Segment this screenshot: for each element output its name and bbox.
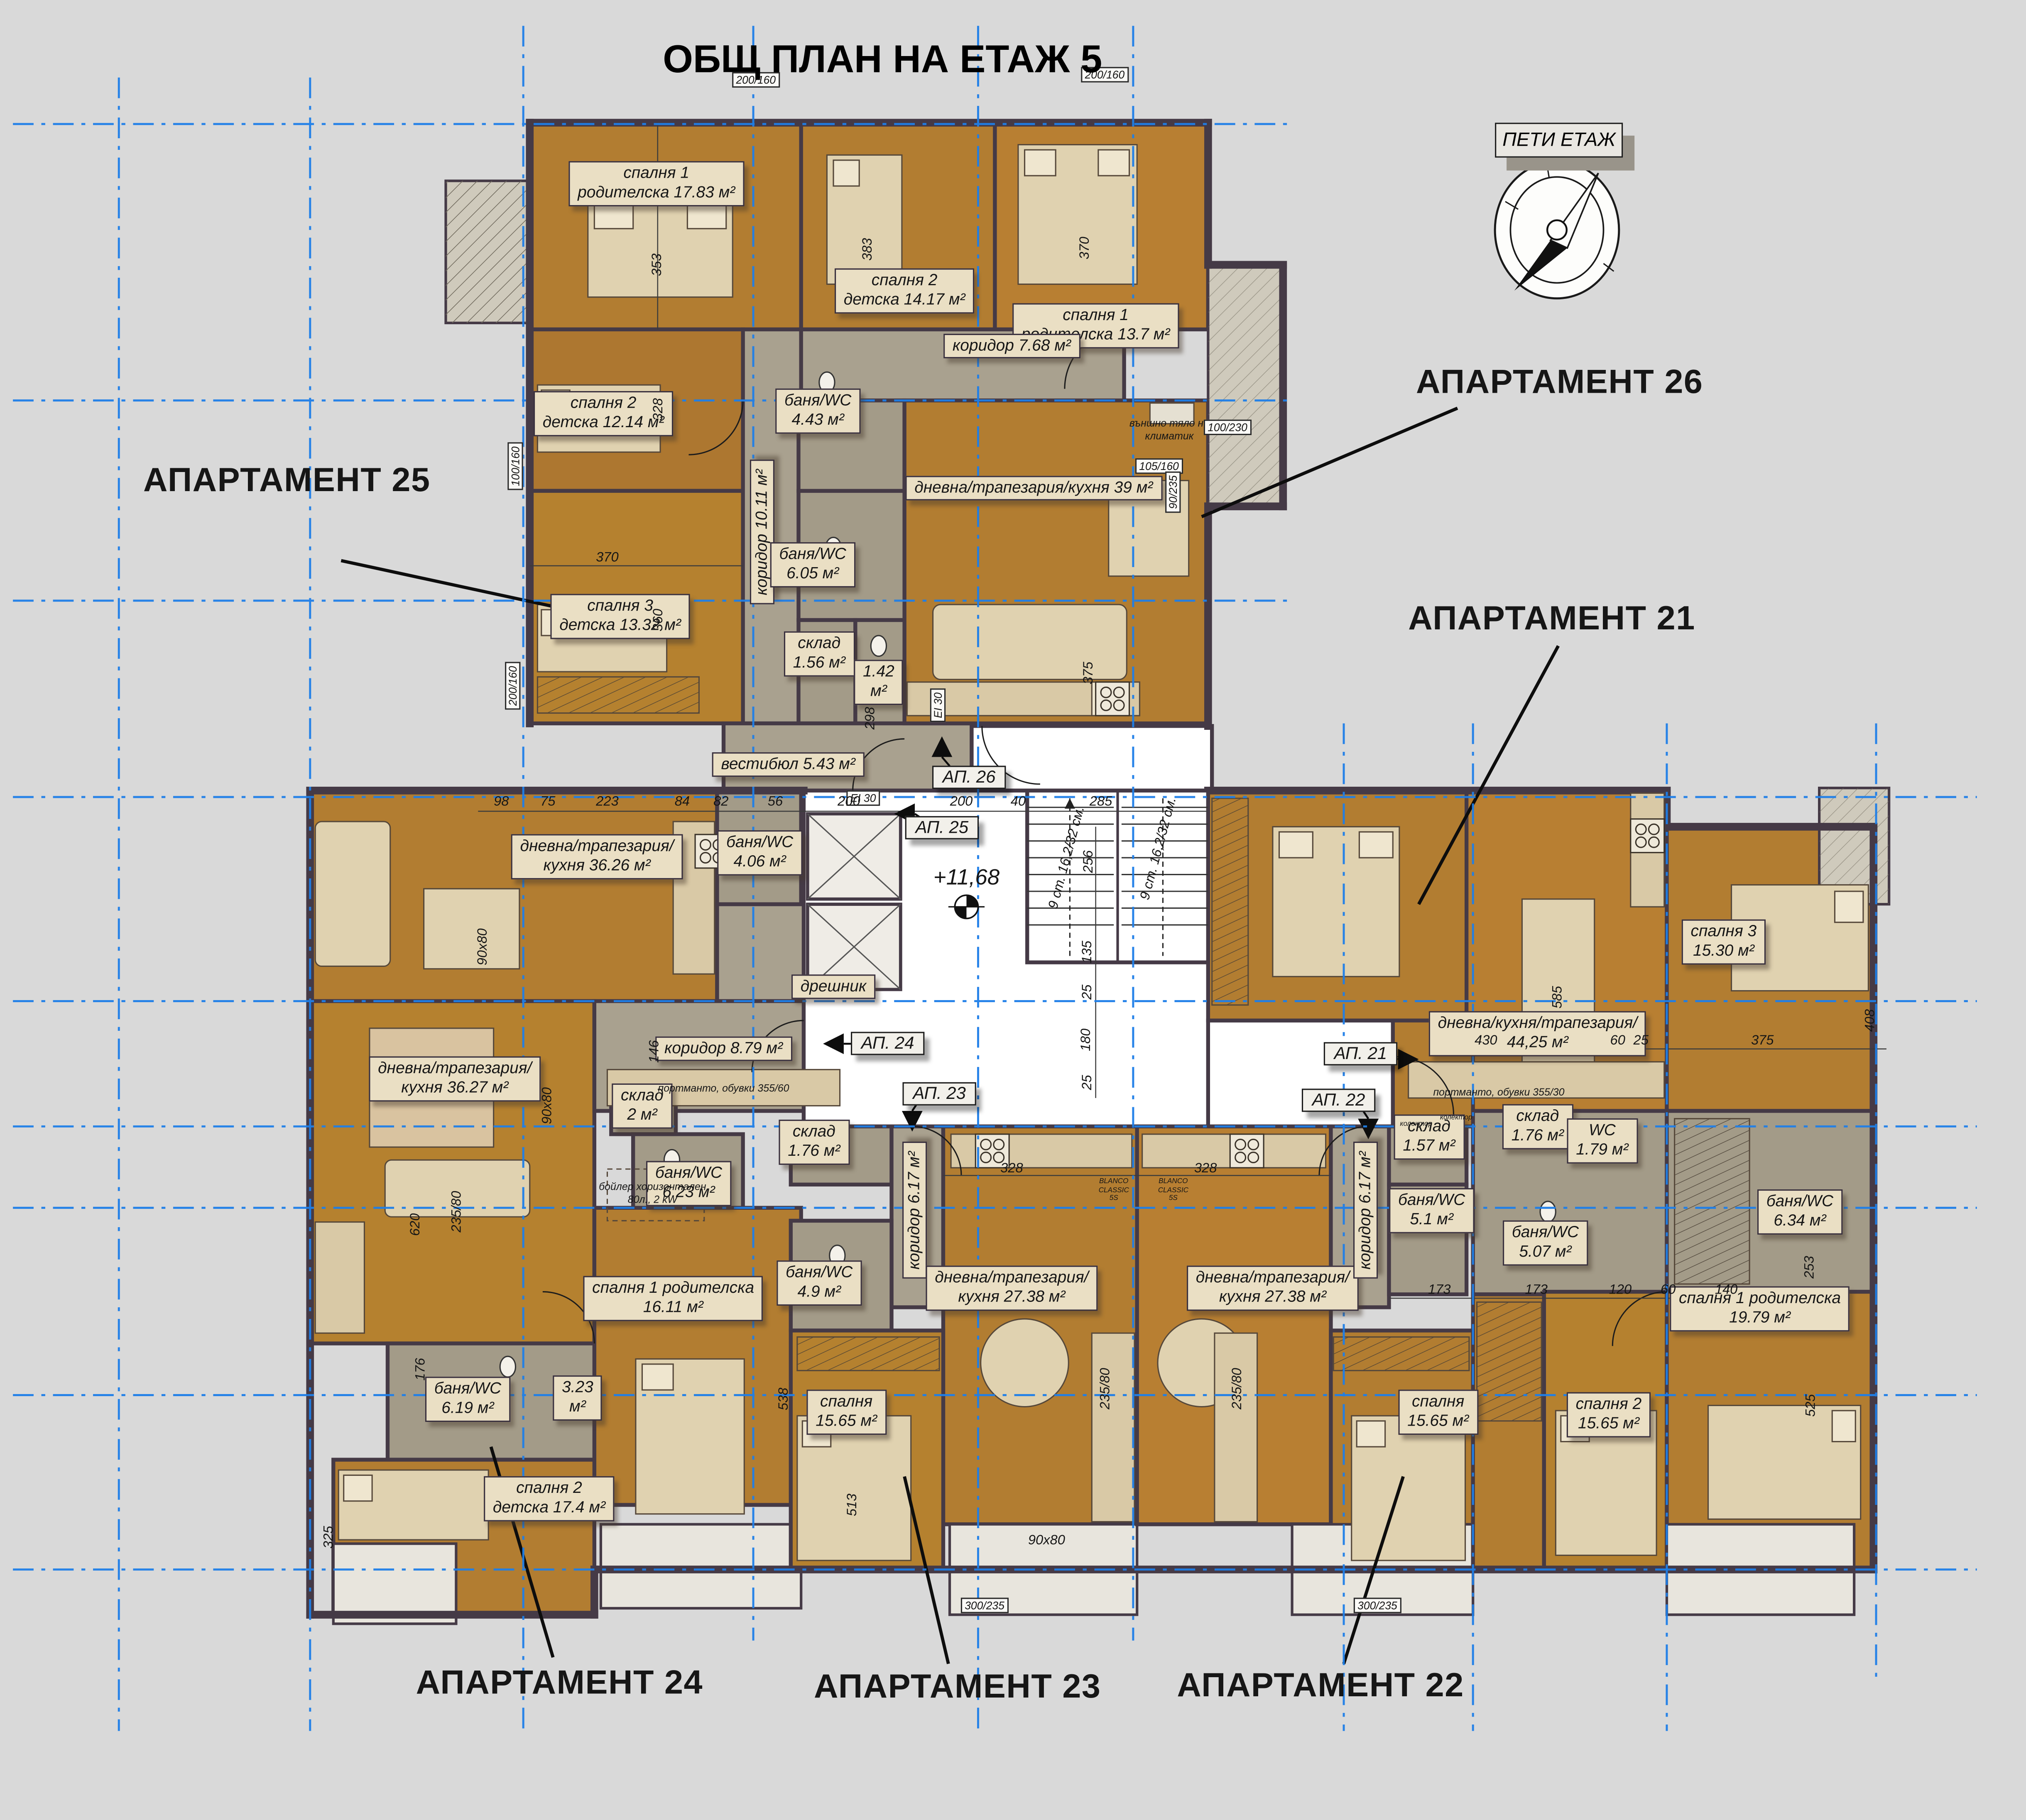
room-label-ap21-wc: WC1.79 м² — [1567, 1118, 1638, 1163]
dimension-label: 370 — [1077, 237, 1094, 259]
dimension-label: 140 — [1715, 1282, 1738, 1299]
dimension-label: 90x80 — [1028, 1533, 1065, 1549]
dimension-label: 180 — [1078, 1029, 1095, 1052]
dimension-label: 60 — [1610, 1033, 1625, 1049]
dimension-label: 525 — [1803, 1394, 1820, 1417]
tag-ap-21: АП. 21 — [1324, 1042, 1397, 1066]
collector-note: колектор — [1400, 1121, 1432, 1130]
dimension-label: 370 — [596, 550, 619, 566]
dimension-label: 56 — [768, 794, 783, 810]
room-label-ap23-bath2: баня/WC4.9 м² — [777, 1260, 862, 1305]
room-label-ap25-bath: баня/WC6.05 м² — [770, 542, 855, 587]
dimension-label: 235/80 — [1230, 1368, 1246, 1409]
room-label-ap22-living: дневна/трапезария/кухня 27.38 м² — [1187, 1266, 1359, 1310]
room-label-ap23-storage: склад1.76 м² — [779, 1120, 849, 1164]
dimension-label: 513 — [845, 1494, 861, 1517]
window-size-tag: 90/235 — [1165, 472, 1181, 513]
room-label-ap26-corridor: коридор 7.68 м² — [943, 334, 1080, 359]
ac-unit-note: външно тяло наклиматик — [1129, 418, 1209, 443]
room-label-ap25-wc: 1.42м² — [854, 660, 903, 704]
tag-ap-22: АП. 22 — [1302, 1089, 1375, 1112]
window-size-tag: 300/235 — [1354, 1597, 1401, 1613]
plan-labels: АПАРТАМЕНТ 25АПАРТАМЕНТ 26АПАРТАМЕНТ 21А… — [0, 0, 2026, 1820]
fire-door-tag: EI 30 — [930, 689, 946, 722]
dimension-label: 173 — [1428, 1282, 1451, 1299]
dimension-label: 620 — [408, 1213, 424, 1236]
room-label-ap25-storage: склад1.56 м² — [784, 631, 855, 676]
room-label-ap22-bedroom: спалня15.65 м² — [1399, 1389, 1478, 1434]
dimension-label: 538 — [776, 1388, 793, 1411]
dimension-label: 375 — [1751, 1033, 1774, 1049]
callout-apartment-21: АПАРТАМЕНТ 21 — [1408, 598, 1695, 639]
room-label-ap24-bedroom1: спалня 1 родителска16.11 м² — [583, 1276, 763, 1320]
room-label-ap25-bedroom3: спалня 3детска 13.32 м² — [550, 594, 690, 638]
callout-apartment-26: АПАРТАМЕНТ 26 — [1416, 362, 1703, 403]
dimension-label: 328 — [651, 398, 667, 421]
room-label-ap26-bedroom2: спалня 2детска 14.17 м² — [835, 268, 974, 313]
dimension-label: 200 — [950, 794, 973, 810]
sink-note: BLANCOCLASSIC5S — [1099, 1178, 1129, 1204]
dimension-label: 200 — [838, 794, 860, 810]
callout-apartment-22: АПАРТАМЕНТ 22 — [1177, 1665, 1464, 1706]
tag-ap-23: АП. 23 — [902, 1082, 976, 1106]
callout-apartment-24: АПАРТАМЕНТ 24 — [416, 1663, 703, 1704]
sink-note: BLANCOCLASSIC5S — [1158, 1178, 1188, 1204]
dimension-label: 325 — [321, 1526, 338, 1549]
dimension-label: 60 — [1661, 1282, 1676, 1299]
dimension-label: 353 — [649, 254, 666, 276]
floor-badge: ПЕТИ ЕТАЖ — [1495, 123, 1623, 158]
boiler-note: бойлер хоризонтален80л., 2 kW — [599, 1181, 706, 1206]
dimension-label: 375 — [1081, 662, 1098, 685]
room-label-ap24-closet: дрешник — [791, 974, 875, 999]
room-label-ap21-bath: баня/WC6.34 м² — [1757, 1189, 1842, 1234]
room-label-ap24-living-upper: дневна/трапезария/кухня 36.26 м² — [511, 834, 683, 878]
dimension-label: 173 — [1525, 1282, 1548, 1299]
window-size-tag: 300/235 — [961, 1597, 1008, 1613]
dimension-label: 82 — [713, 794, 728, 810]
callout-apartment-23: АПАРТАМЕНТ 23 — [814, 1666, 1101, 1707]
room-label-ap24-bath-upper: баня/WC4.06 м² — [717, 830, 802, 875]
tag-ap-25: АП. 25 — [905, 816, 979, 840]
room-label-ap22-bath: баня/WC5.1 м² — [1389, 1188, 1474, 1233]
callout-apartment-25: АПАРТАМЕНТ 25 — [143, 460, 430, 501]
room-label-ap21-bedroom3: спалня 315.30 м² — [1682, 920, 1766, 964]
dimension-label: 285 — [1090, 794, 1112, 810]
dimension-label: 90x80 — [475, 928, 492, 965]
dimension-label: 90x80 — [539, 1087, 556, 1124]
dimension-label: 430 — [1475, 1033, 1497, 1049]
collector-note: колектор — [1440, 1114, 1472, 1123]
level-mark: +11,68 — [933, 865, 1000, 892]
dimension-label: 256 — [1081, 850, 1098, 873]
window-size-tag: 100/160 — [507, 443, 523, 490]
stairs-note: 9 ст. 16,2/32 см. — [1137, 795, 1181, 902]
dimension-label: 75 — [540, 794, 555, 810]
dimension-label: 25 — [1634, 1033, 1649, 1049]
dimension-label: 383 — [860, 238, 877, 261]
dimension-label: 98 — [494, 794, 509, 810]
closet-note: портманто, обувки 355/30 — [1433, 1086, 1564, 1099]
room-label-ap25-bedroom1: спалня 1родителска 17.83 м² — [568, 161, 744, 205]
room-label-ap26-bath: баня/WC4.43 м² — [775, 389, 860, 433]
room-label-ap24-hall: 3.23м² — [553, 1375, 602, 1420]
dimension-label: 253 — [1802, 1256, 1818, 1279]
dimension-label: 223 — [596, 794, 619, 810]
tag-ap-26: АП. 26 — [932, 766, 1006, 789]
room-label-ap23-living: дневна/трапезария/кухня 27.38 м² — [926, 1266, 1098, 1310]
page-title: ОБЩ ПЛАН НА ЕТАЖ 5 — [663, 39, 1102, 83]
dimension-label: 120 — [1609, 1282, 1632, 1299]
room-label-ap25-vestibule: вестибюл 5.43 м² — [712, 752, 865, 777]
room-label-ap24-bath2: баня/WC6.19 м² — [425, 1377, 510, 1421]
dimension-label: 135 — [1080, 941, 1096, 964]
room-label-ap22-bath2: баня/WC5.07 м² — [1503, 1221, 1588, 1265]
room-label-ap23-corridor: коридор 6.17 м² — [902, 1142, 927, 1279]
dimension-label: 235/80 — [449, 1191, 466, 1233]
room-label-ap22-corridor: коридор 6.17 м² — [1353, 1142, 1378, 1279]
dimension-label: 298 — [862, 707, 879, 730]
room-label-ap24-bedroom2: спалня 2детска 17.4 м² — [484, 1476, 615, 1521]
dimension-label: 176 — [413, 1358, 429, 1381]
room-label-ap23-bedroom: спалня15.65 м² — [806, 1389, 886, 1434]
closet-note: портманто, обувки 355/60 — [658, 1083, 789, 1095]
dimension-label: 25 — [1080, 985, 1096, 1000]
dimension-label: 328 — [1194, 1161, 1217, 1177]
floor-plan-stage: АПАРТАМЕНТ 25АПАРТАМЕНТ 26АПАРТАМЕНТ 21А… — [0, 0, 2026, 1820]
room-label-ap21-bedroom1: спалня 1 родителска19.79 м² — [1670, 1286, 1850, 1331]
room-label-ap21-bedroom2: спалня 215.65 м² — [1567, 1392, 1651, 1437]
dimension-label: 40 — [1011, 794, 1026, 810]
dimension-label: 328 — [1000, 1161, 1023, 1177]
dimension-label: 360 — [651, 609, 667, 631]
window-size-tag: 100/230 — [1204, 420, 1251, 435]
room-label-ap24-living: дневна/трапезария/кухня 36.27 м² — [369, 1057, 541, 1101]
dimension-label: 146 — [647, 1040, 664, 1063]
dimension-label: 408 — [1863, 1009, 1879, 1032]
dimension-label: 25 — [1080, 1075, 1096, 1090]
tag-ap-24: АП. 24 — [851, 1032, 924, 1055]
window-size-tag: 200/160 — [505, 662, 521, 709]
room-label-ap26-living: дневна/трапезария/кухня 39 м² — [905, 476, 1162, 501]
dimension-label: 84 — [675, 794, 690, 810]
room-label-ap24-corridor: коридор 8.79 м² — [655, 1037, 792, 1062]
dimension-label: 235/80 — [1098, 1368, 1115, 1409]
room-label-ap21-storage: склад1.76 м² — [1502, 1104, 1573, 1149]
dimension-label: 585 — [1550, 986, 1567, 1009]
